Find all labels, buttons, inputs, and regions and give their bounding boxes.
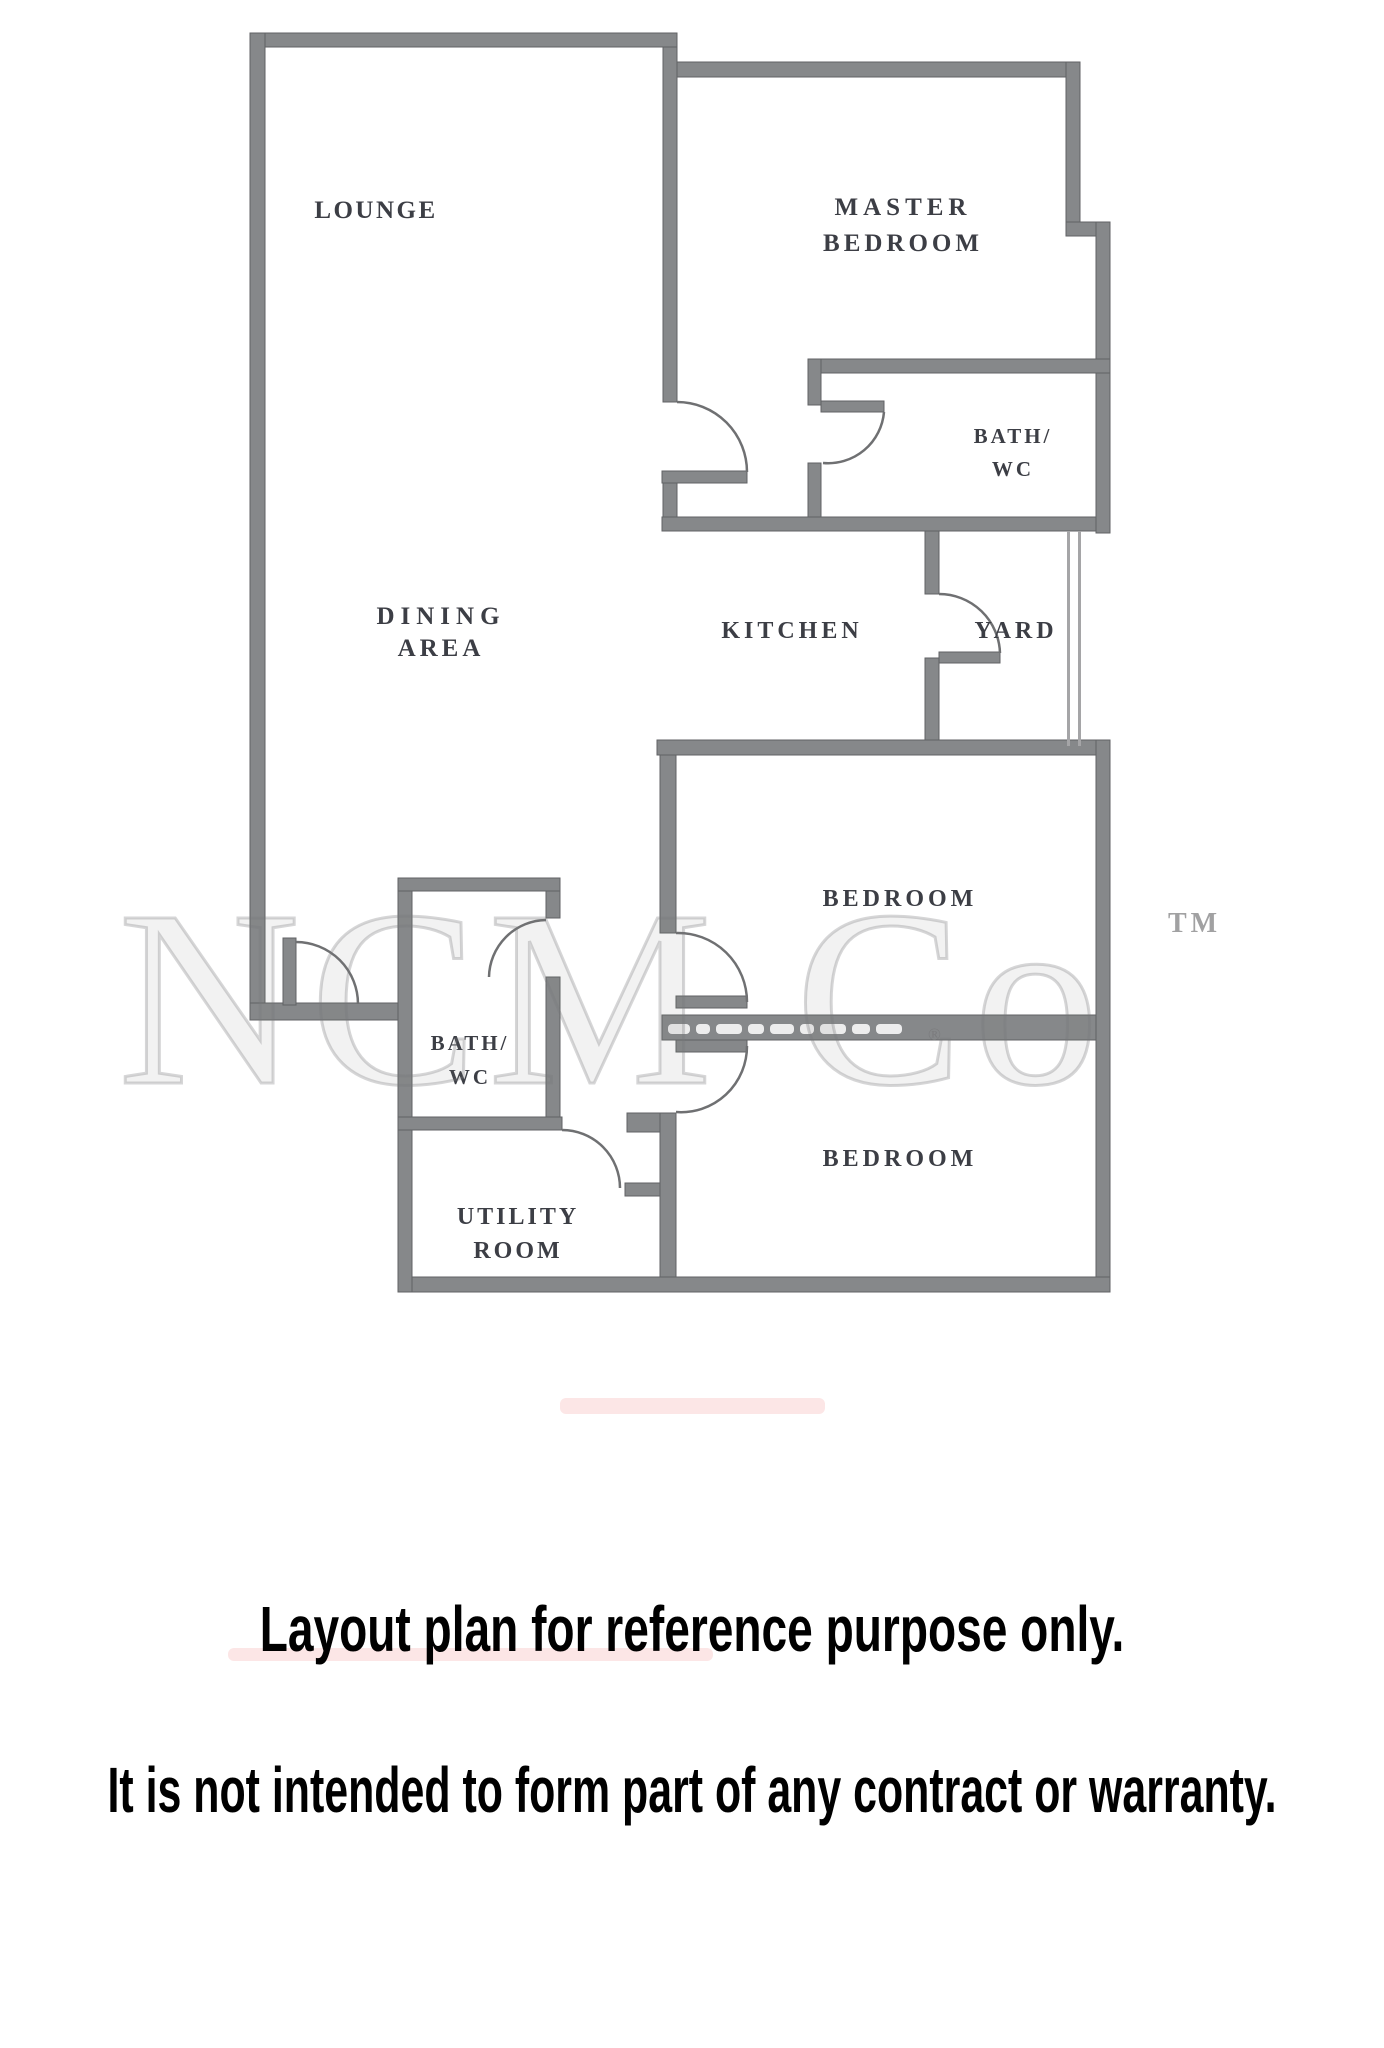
wall-master-right-upper (1066, 62, 1080, 236)
floor-plan: LOUNGE MASTER BEDROOM BATH/ WC DINING AR… (0, 0, 1384, 2048)
wall-outer-left (250, 33, 265, 1020)
wall-bath2-right-b (546, 977, 560, 1130)
entry-door-arc (296, 942, 358, 1004)
yard-window-lines (1067, 531, 1081, 746)
wall-master-bath-divider (808, 359, 1110, 373)
room-label-bath1-line1: BATH/ (974, 424, 1053, 448)
room-label-master-line1: MASTER (835, 194, 972, 221)
wall-hall-a (660, 755, 676, 933)
wall-entry-door-leaf (283, 938, 296, 1005)
room-label-lounge: LOUNGE (314, 197, 437, 224)
wall-hall-b (660, 1113, 676, 1277)
room-label-bath2-line2: WC (449, 1065, 491, 1089)
wall-utility-door-spur (625, 1183, 660, 1196)
wall-bottom (400, 1277, 1110, 1292)
watermark-knockout (668, 1024, 902, 1034)
wall-yard-door-leaf (939, 652, 1000, 663)
wall-lounge-master-divider (663, 47, 677, 402)
bedroom-mid-door-arc (676, 933, 747, 1002)
room-label-bath1-line2: WC (992, 457, 1034, 481)
wall-bath2-left (398, 878, 412, 1292)
wall-bath1-door-leaf (821, 401, 884, 412)
bath1-door-arc (823, 412, 884, 463)
room-label-bedroom-mid: BEDROOM (823, 886, 978, 912)
room-label-dining-line1: DINING (376, 603, 505, 630)
room-label-dining-line2: AREA (398, 635, 485, 662)
utility-door-arc (562, 1130, 620, 1188)
room-label-kitchen: KITCHEN (721, 618, 862, 644)
wall-lounge-top (250, 33, 677, 47)
room-label-yard: YARD (974, 618, 1057, 644)
wall-bath2-top (398, 878, 560, 891)
room-label-utility-line2: ROOM (473, 1238, 562, 1264)
wall-bedroom-top (657, 740, 1110, 755)
wall-yard-divider-a (925, 531, 939, 594)
wall-entry-bottom (250, 1003, 402, 1020)
wall-master-top (677, 62, 1080, 77)
disclaimer-line-2: It is not intended to form part of any c… (108, 1753, 1277, 1827)
wall-bath2-utility-divider (398, 1117, 562, 1130)
wall-kitchen-top (662, 517, 1096, 531)
room-label-utility-line1: UTILITY (457, 1204, 579, 1230)
master-door-arc (677, 402, 747, 472)
room-label-bedroom-bottom: BEDROOM (823, 1146, 978, 1172)
wall-hall-stub (627, 1113, 660, 1132)
trademark-symbol: TM (1168, 908, 1221, 940)
scan-artifact (560, 1398, 825, 1414)
wall-yard-divider-b (925, 658, 939, 746)
wall-master-door-stub (663, 483, 677, 519)
wall-bedroom-right (1096, 740, 1110, 1292)
room-label-master-line2: BEDROOM (823, 230, 983, 257)
wall-bath2-right-a (546, 891, 560, 918)
registered-icon: ® (928, 1025, 941, 1044)
bath2-door-arc (489, 920, 546, 977)
wall-bedroom-door-leaf-upper (676, 996, 747, 1008)
room-label-bath2-line1: BATH/ (431, 1031, 510, 1055)
wall-bedroom-door-leaf-lower (676, 1040, 747, 1052)
disclaimer-line-1: Layout plan for reference purpose only. (260, 1592, 1125, 1666)
wall-bath1-left-a (808, 359, 821, 405)
wall-master-door-spur (662, 471, 747, 483)
wall-outer-right-upper (1096, 222, 1110, 533)
bedroom-bottom-door-arc (676, 1046, 747, 1112)
